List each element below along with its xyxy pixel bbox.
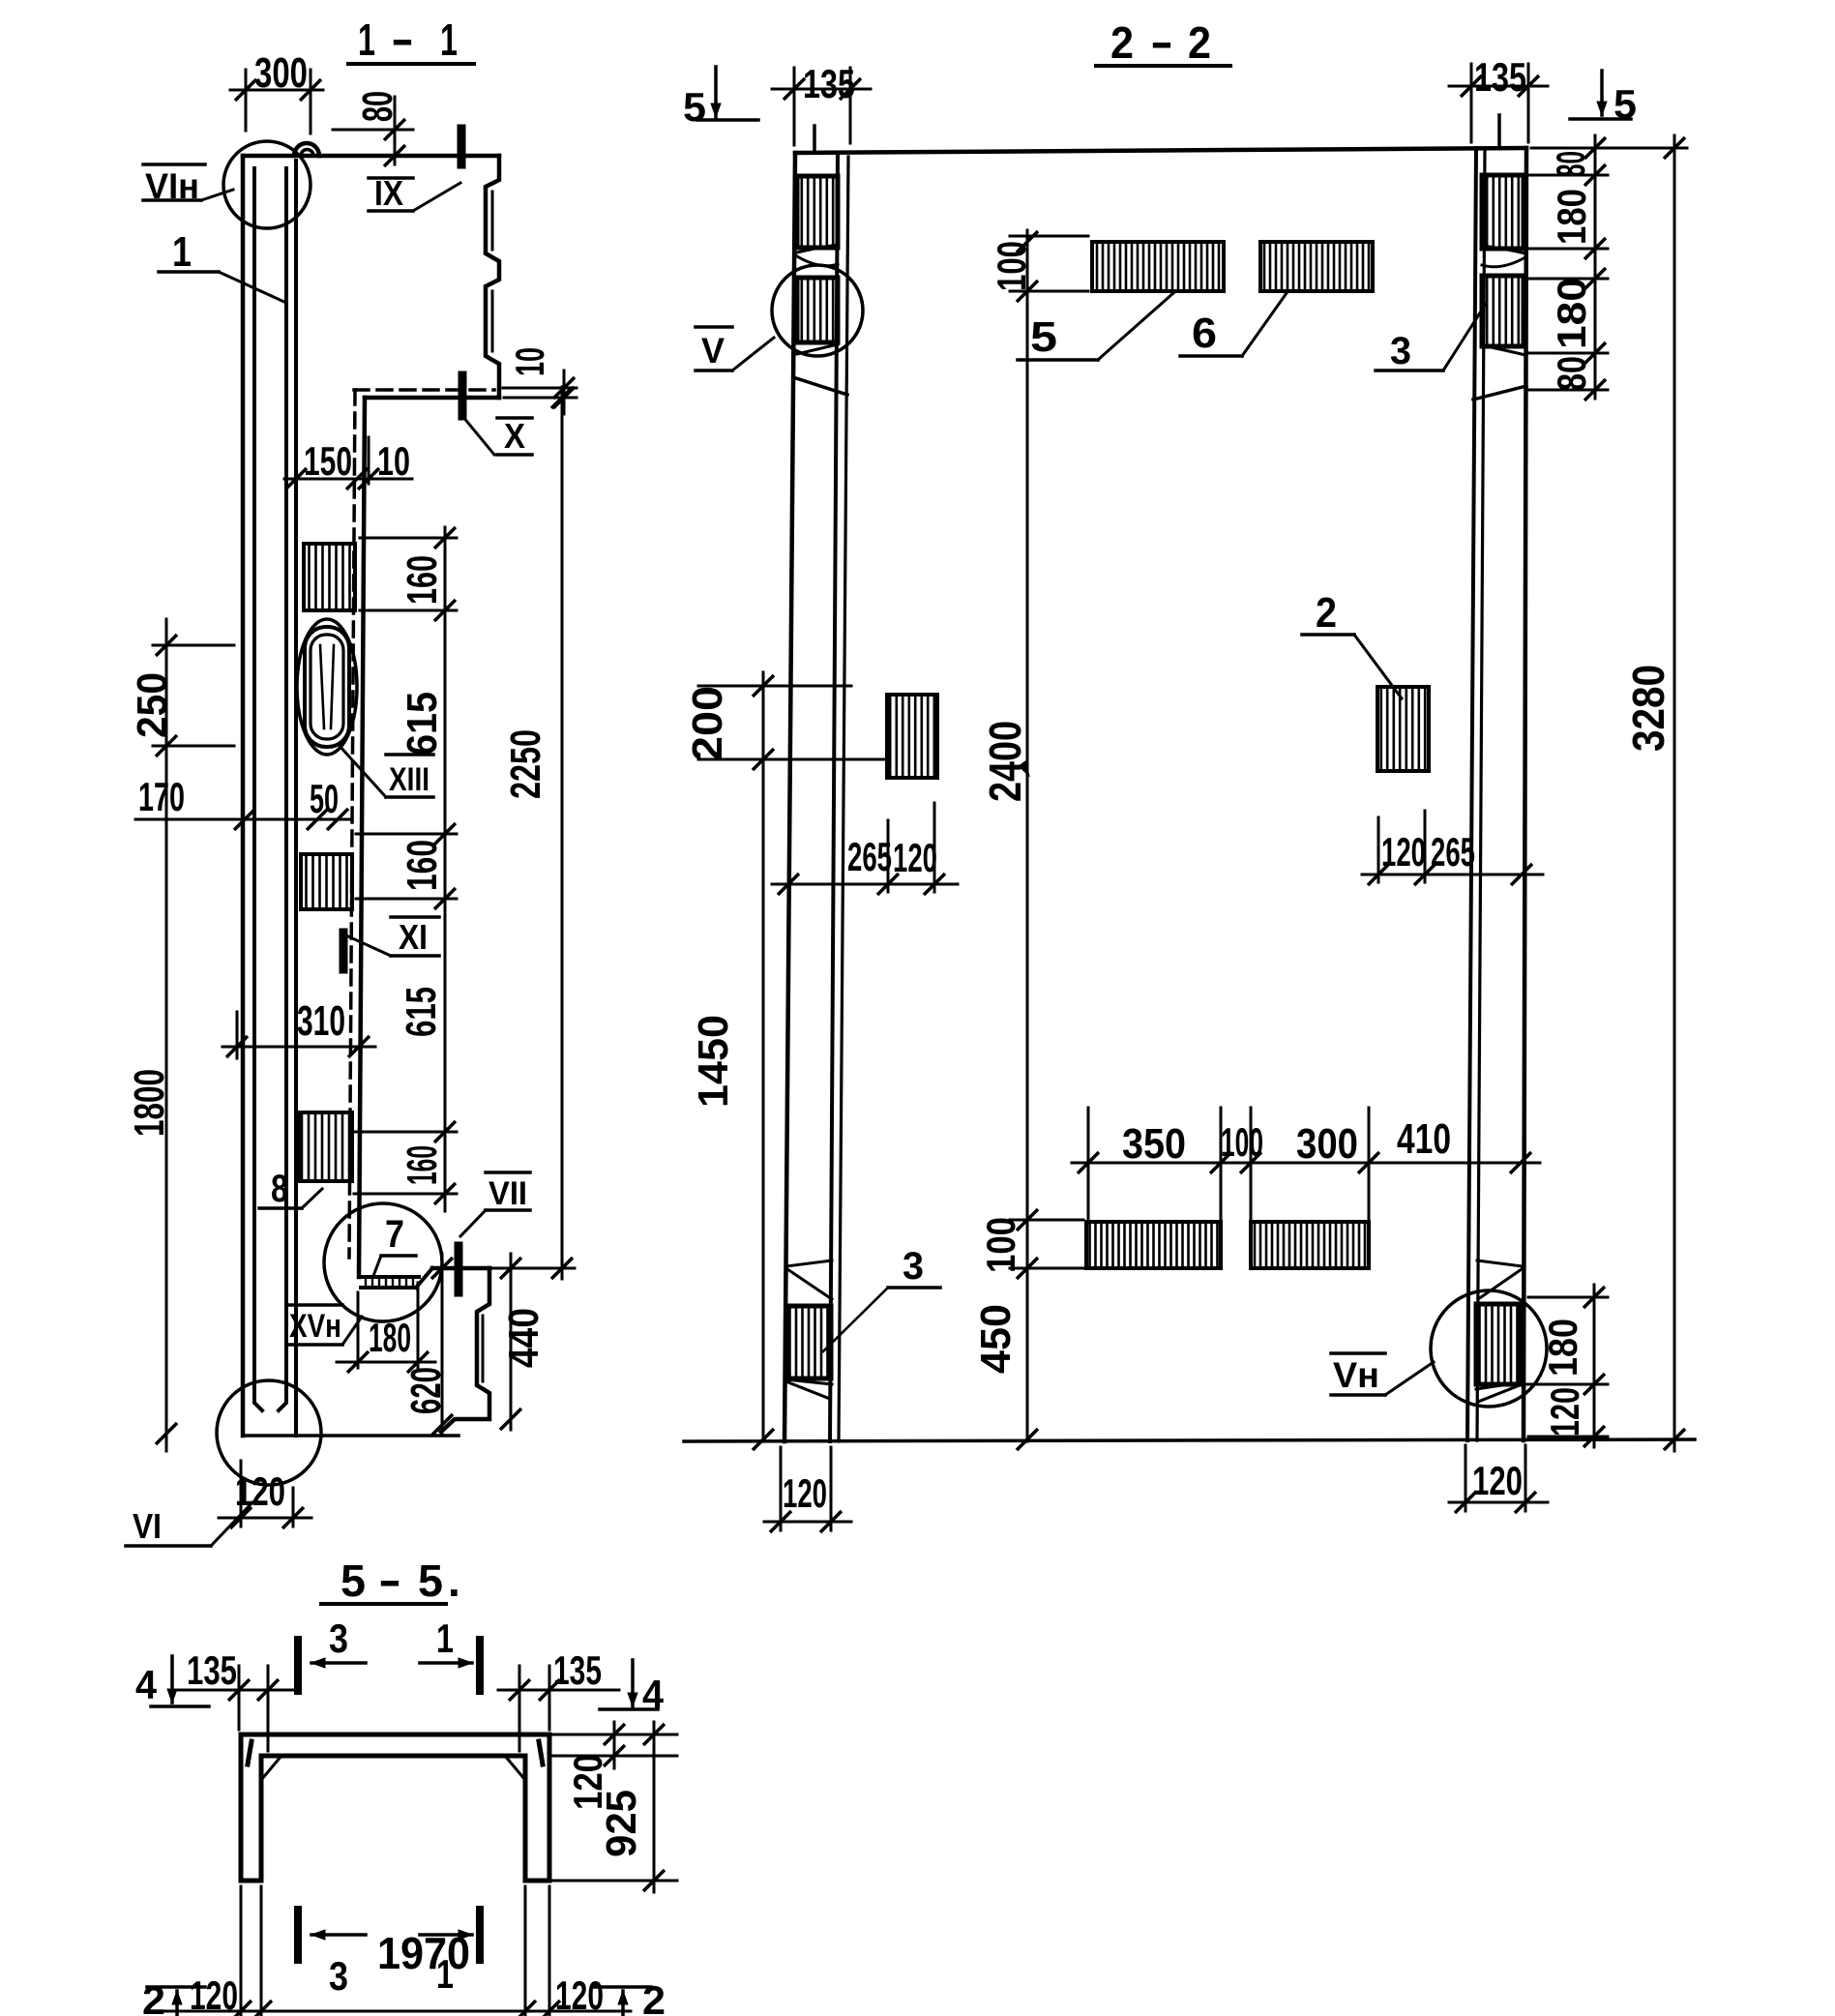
- svg-text:135: 135: [803, 61, 855, 106]
- svg-text:VI: VI: [133, 1506, 162, 1546]
- svg-text:-: -: [391, 14, 414, 64]
- svg-text:120: 120: [555, 1972, 604, 2016]
- svg-text:120: 120: [1381, 829, 1426, 875]
- svg-text:X: X: [504, 416, 525, 456]
- svg-text:450: 450: [972, 1304, 1020, 1374]
- svg-text:Vн: Vн: [1333, 1355, 1379, 1395]
- svg-text:300: 300: [1296, 1120, 1358, 1168]
- svg-text:620: 620: [402, 1367, 450, 1414]
- svg-text:440: 440: [500, 1308, 548, 1368]
- svg-text:120: 120: [235, 1468, 285, 1514]
- svg-text:120: 120: [190, 1972, 238, 2016]
- svg-text:100: 100: [978, 1217, 1023, 1273]
- svg-text:6: 6: [1192, 310, 1217, 357]
- svg-text:170: 170: [138, 774, 185, 819]
- svg-text:265: 265: [1431, 829, 1475, 875]
- svg-text:180: 180: [1549, 189, 1594, 245]
- svg-text:80: 80: [1548, 151, 1593, 177]
- svg-text:V: V: [701, 331, 725, 371]
- svg-text:1: 1: [358, 15, 375, 65]
- svg-text:150: 150: [304, 438, 352, 484]
- svg-text:265: 265: [847, 834, 892, 879]
- svg-text:100: 100: [989, 241, 1034, 291]
- svg-text:2250: 2250: [502, 729, 549, 799]
- svg-text:5: 5: [1030, 313, 1057, 361]
- svg-text:10: 10: [507, 347, 552, 376]
- svg-text:615: 615: [398, 987, 445, 1037]
- svg-text:XI: XI: [399, 917, 428, 957]
- svg-text:160: 160: [399, 1145, 446, 1185]
- svg-text:VII: VII: [488, 1175, 527, 1212]
- svg-text:5: 5: [418, 1556, 443, 1606]
- svg-text:925: 925: [598, 1790, 645, 1857]
- svg-text:120: 120: [783, 1470, 827, 1516]
- svg-text:120: 120: [1472, 1458, 1523, 1503]
- svg-text:5: 5: [340, 1556, 366, 1606]
- svg-text:200: 200: [684, 686, 731, 761]
- svg-text:3: 3: [329, 1953, 348, 1999]
- svg-text:8: 8: [271, 1168, 288, 1210]
- svg-text:120: 120: [1542, 1387, 1587, 1437]
- svg-text:2400: 2400: [980, 721, 1030, 802]
- svg-text:XIII: XIII: [389, 761, 429, 798]
- svg-text:3280: 3280: [1623, 665, 1673, 752]
- svg-text:3: 3: [903, 1245, 924, 1288]
- svg-text:-: -: [378, 1555, 401, 1605]
- svg-text:80: 80: [1549, 356, 1594, 391]
- svg-text:1: 1: [436, 1616, 454, 1661]
- svg-text:1970: 1970: [377, 1928, 470, 1978]
- svg-text:1: 1: [172, 228, 192, 276]
- svg-text:350: 350: [1122, 1120, 1186, 1168]
- svg-text:180: 180: [369, 1315, 411, 1360]
- svg-text:3: 3: [1390, 330, 1411, 372]
- svg-text:160: 160: [399, 555, 446, 605]
- svg-text:5: 5: [683, 84, 706, 130]
- svg-text:120: 120: [893, 835, 937, 880]
- svg-text:2: 2: [1188, 17, 1211, 68]
- svg-text:XVн: XVн: [289, 1308, 341, 1345]
- svg-text:160: 160: [399, 840, 446, 891]
- svg-text:-: -: [1150, 16, 1173, 67]
- svg-text:135: 135: [187, 1647, 237, 1693]
- svg-text:4: 4: [135, 1662, 158, 1707]
- svg-text:.: .: [448, 1556, 460, 1606]
- svg-text:615: 615: [399, 692, 446, 756]
- svg-text:1: 1: [440, 15, 458, 65]
- svg-text:250: 250: [129, 672, 176, 738]
- svg-text:1450: 1450: [690, 1015, 737, 1108]
- svg-text:410: 410: [1397, 1115, 1451, 1163]
- svg-text:10: 10: [377, 438, 410, 484]
- svg-text:180: 180: [1540, 1319, 1585, 1377]
- svg-text:310: 310: [297, 997, 345, 1045]
- svg-text:180: 180: [1549, 278, 1594, 349]
- svg-text:3: 3: [329, 1616, 348, 1661]
- svg-text:2: 2: [1316, 589, 1337, 637]
- svg-text:1800: 1800: [126, 1069, 173, 1137]
- svg-text:135: 135: [553, 1647, 602, 1693]
- svg-text:7: 7: [385, 1213, 404, 1256]
- svg-text:100: 100: [1221, 1119, 1263, 1165]
- svg-text:IX: IX: [374, 173, 403, 213]
- svg-text:2: 2: [1110, 17, 1134, 68]
- svg-text:2: 2: [642, 1977, 666, 2016]
